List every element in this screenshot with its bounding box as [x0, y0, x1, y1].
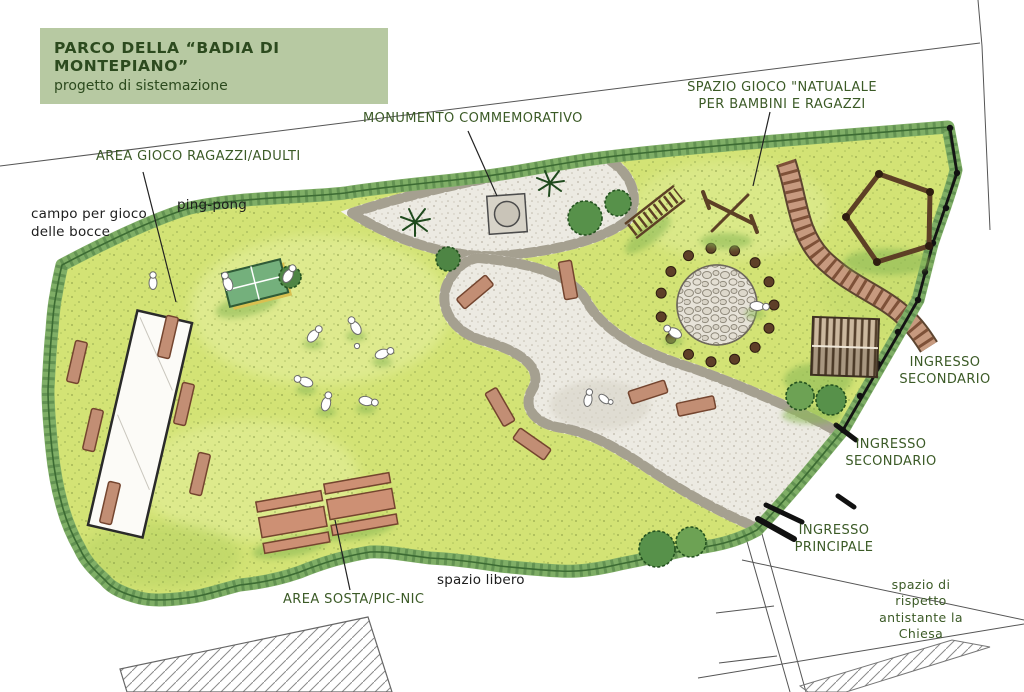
plan-subtitle: progetto di sistemazione	[54, 78, 374, 94]
label-spazio-rispetto: spazio di rispetto antistante la Chiesa	[870, 577, 973, 642]
label-spazio-libero: spazio libero	[437, 572, 525, 590]
plan-title: PARCO DELLA “BADIA DI MONTEPIANO”	[54, 39, 374, 75]
hut	[811, 317, 879, 377]
label-bocce: campo per gioco delle bocce	[31, 206, 147, 241]
monument	[487, 194, 528, 235]
label-area-sosta: AREA SOSTA/PIC-NIC	[283, 592, 424, 609]
label-monumento: MONUMENTO COMMEMORATIVO	[363, 111, 583, 128]
label-ping-pong: ping-pong	[177, 197, 247, 215]
label-area-gioco: AREA GIOCO RAGAZZI/ADULTI	[96, 149, 301, 166]
label-spazio-gioco: SPAZIO GIOCO "NATUALALE PER BAMBINI E RA…	[687, 80, 877, 114]
label-ingresso-principale: INGRESSO PRINCIPALE	[795, 523, 874, 557]
label-ingresso-secondario-2: INGRESSO SECONDARIO	[845, 437, 936, 471]
title-block: PARCO DELLA “BADIA DI MONTEPIANO” proget…	[40, 28, 388, 104]
park-plan-page: PARCO DELLA “BADIA DI MONTEPIANO” proget…	[0, 0, 1024, 692]
label-ingresso-secondario-1: INGRESSO SECONDARIO	[899, 355, 990, 389]
